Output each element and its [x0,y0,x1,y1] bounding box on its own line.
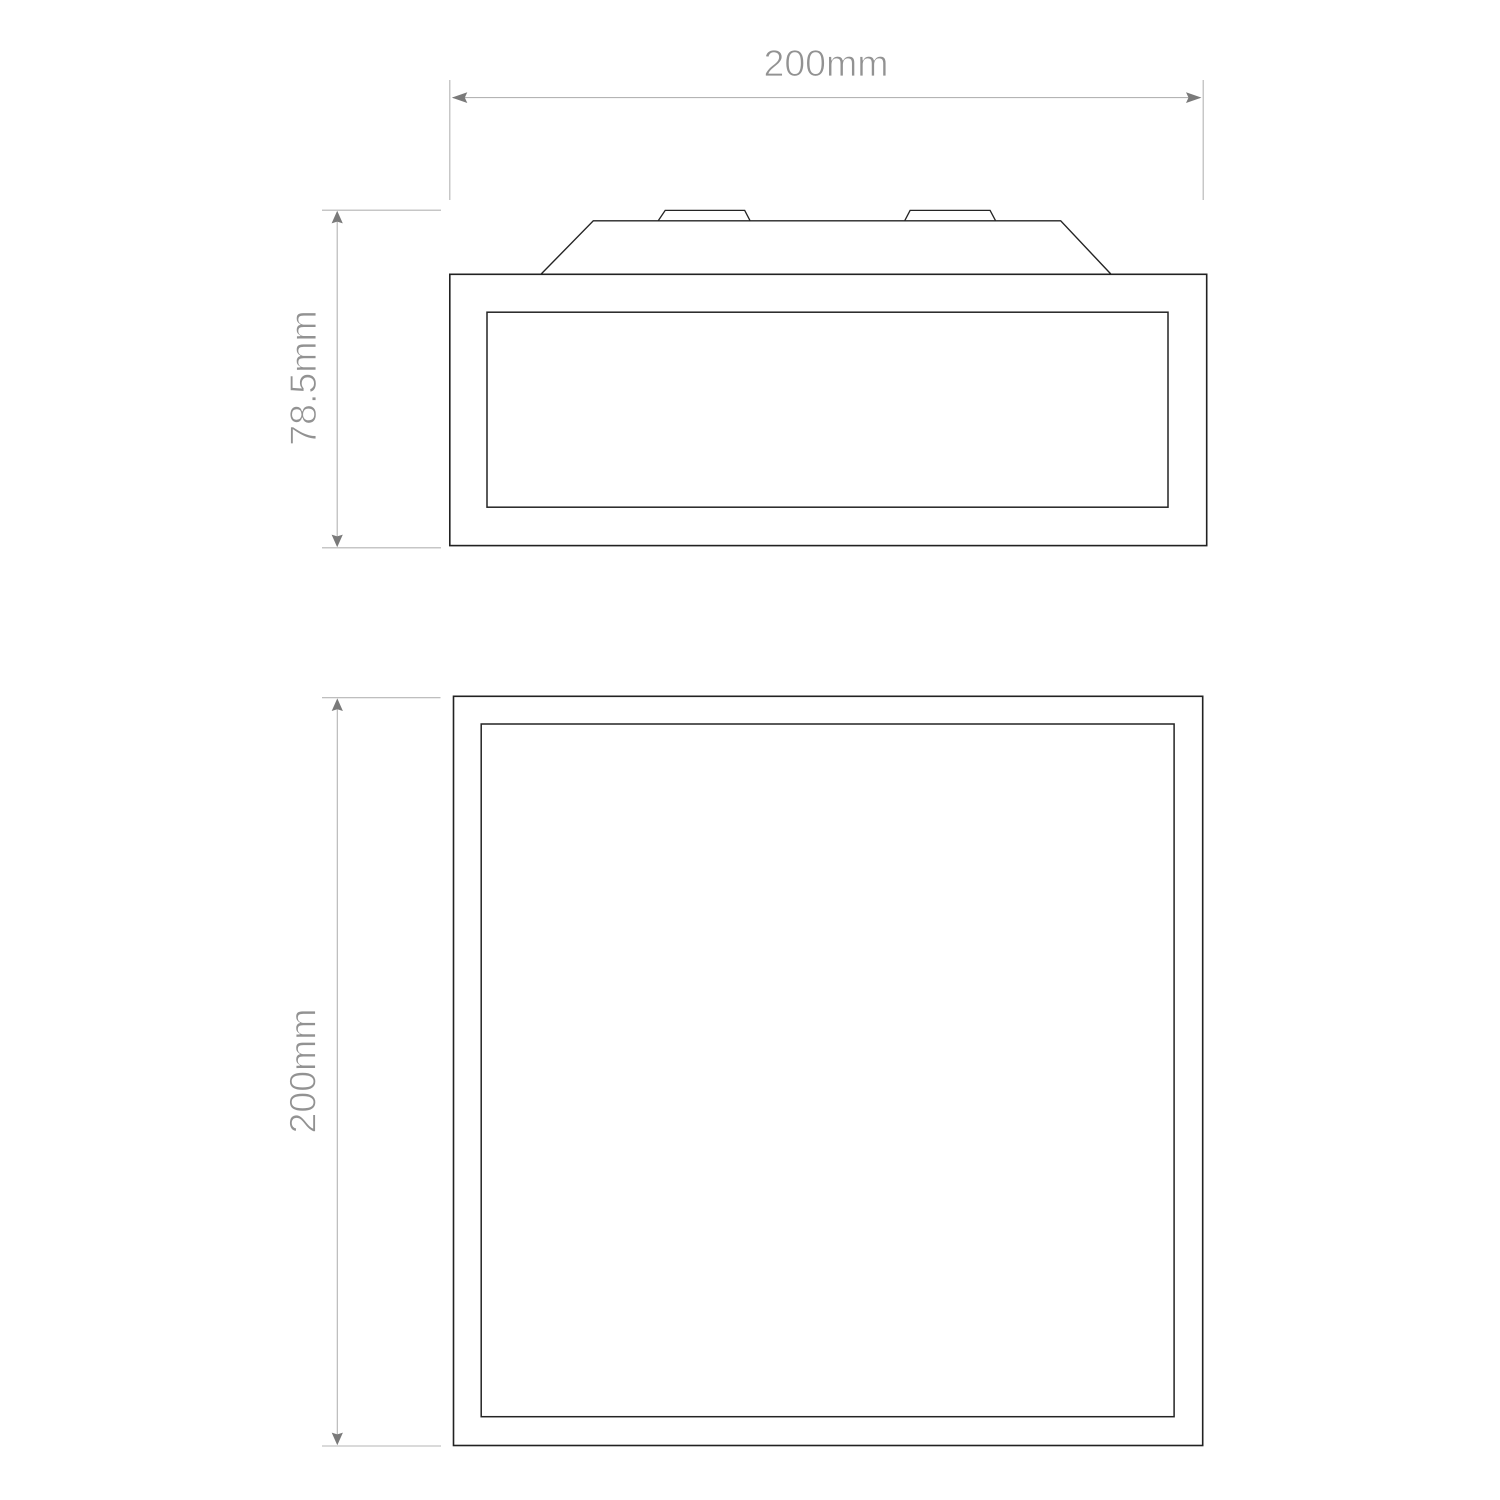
svg-text:78.5mm: 78.5mm [282,310,324,445]
svg-text:200mm: 200mm [763,42,888,84]
svg-text:200mm: 200mm [282,1008,324,1133]
